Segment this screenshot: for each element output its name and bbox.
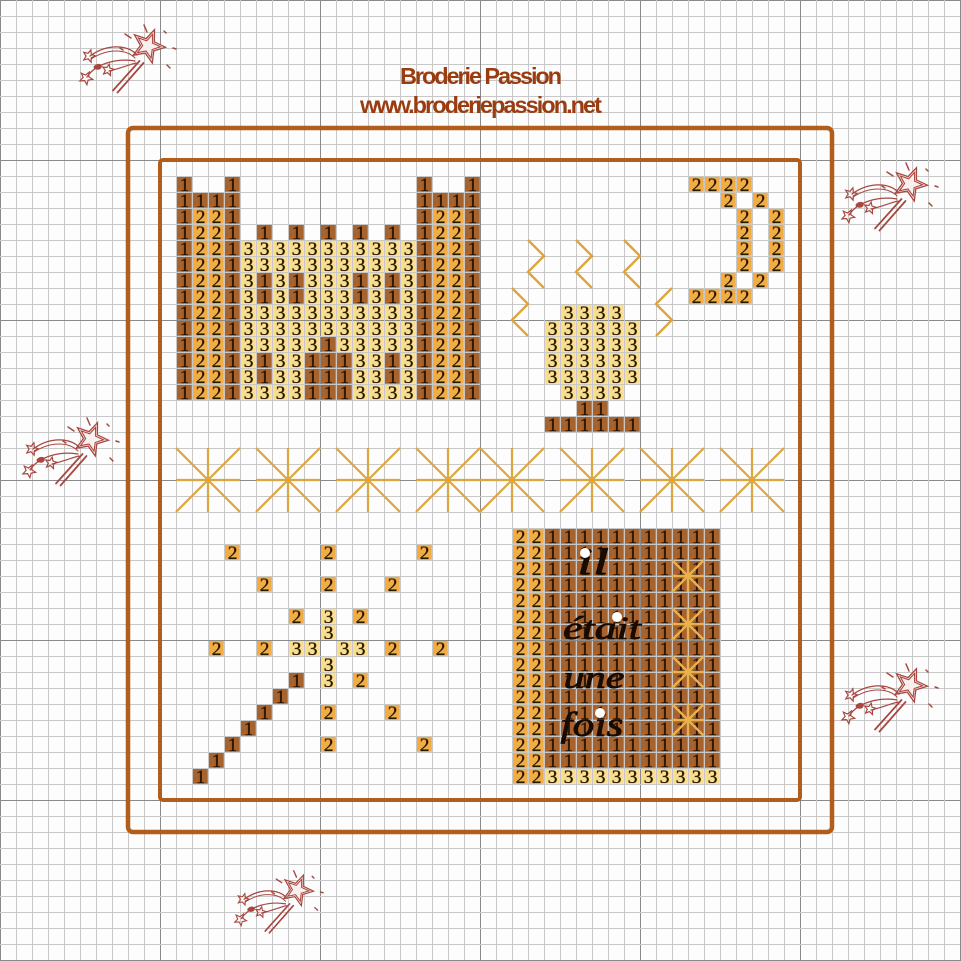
svg-text:2: 2 [708, 287, 718, 308]
svg-text:2: 2 [260, 639, 270, 660]
svg-text:1: 1 [228, 383, 238, 404]
svg-text:3: 3 [564, 767, 574, 788]
svg-text:3: 3 [292, 639, 302, 660]
svg-text:2: 2 [212, 383, 222, 404]
svg-text:fois: fois [561, 705, 624, 744]
svg-text:2: 2 [388, 575, 398, 596]
svg-text:3: 3 [324, 671, 334, 692]
svg-text:3: 3 [628, 767, 638, 788]
svg-text:1: 1 [612, 415, 622, 436]
svg-text:2: 2 [324, 543, 334, 564]
svg-text:3: 3 [292, 383, 302, 404]
svg-text:2: 2 [772, 255, 782, 276]
svg-text:2: 2 [740, 287, 750, 308]
svg-text:2: 2 [756, 271, 766, 292]
svg-text:3: 3 [644, 767, 654, 788]
svg-text:2: 2 [356, 671, 366, 692]
svg-text:3: 3 [612, 767, 622, 788]
svg-text:3: 3 [276, 383, 286, 404]
svg-text:2: 2 [532, 767, 542, 788]
svg-text:1: 1 [212, 751, 222, 772]
svg-text:3: 3 [580, 767, 590, 788]
svg-text:3: 3 [356, 383, 366, 404]
svg-text:3: 3 [244, 383, 254, 404]
svg-text:1: 1 [244, 719, 254, 740]
svg-text:une: une [564, 659, 625, 695]
svg-text:1: 1 [420, 383, 430, 404]
svg-text:2: 2 [708, 175, 718, 196]
svg-text:3: 3 [692, 767, 702, 788]
svg-text:1: 1 [340, 383, 350, 404]
svg-text:2: 2 [388, 639, 398, 660]
svg-text:2: 2 [692, 175, 702, 196]
svg-text:2: 2 [724, 287, 734, 308]
svg-text:2: 2 [324, 575, 334, 596]
svg-text:1: 1 [276, 687, 286, 708]
svg-text:2: 2 [356, 607, 366, 628]
svg-text:3: 3 [676, 767, 686, 788]
svg-text:3: 3 [548, 767, 558, 788]
svg-text:2: 2 [212, 639, 222, 660]
svg-text:3: 3 [628, 367, 638, 388]
svg-text:il: il [577, 542, 609, 583]
svg-text:2: 2 [516, 767, 526, 788]
svg-text:1: 1 [292, 671, 302, 692]
svg-text:1: 1 [324, 383, 334, 404]
svg-text:1: 1 [548, 415, 558, 436]
svg-text:3: 3 [308, 639, 318, 660]
svg-text:3: 3 [564, 383, 574, 404]
svg-text:1: 1 [596, 415, 606, 436]
svg-text:Broderie Passion: Broderie Passion [400, 63, 562, 89]
svg-text:2: 2 [420, 543, 430, 564]
svg-text:1: 1 [228, 735, 238, 756]
svg-text:2: 2 [692, 287, 702, 308]
svg-text:2: 2 [740, 175, 750, 196]
svg-text:2: 2 [420, 735, 430, 756]
svg-text:3: 3 [340, 639, 350, 660]
svg-text:1: 1 [468, 383, 478, 404]
svg-text:2: 2 [228, 543, 238, 564]
svg-text:1: 1 [564, 415, 574, 436]
svg-text:1: 1 [196, 767, 206, 788]
svg-text:3: 3 [356, 639, 366, 660]
svg-text:2: 2 [388, 703, 398, 724]
svg-text:2: 2 [724, 191, 734, 212]
svg-text:2: 2 [196, 383, 206, 404]
svg-text:3: 3 [324, 623, 334, 644]
svg-text:2: 2 [436, 383, 446, 404]
svg-text:était: était [563, 611, 642, 647]
svg-text:1: 1 [260, 703, 270, 724]
svg-text:3: 3 [404, 383, 414, 404]
svg-text:3: 3 [260, 383, 270, 404]
svg-text:3: 3 [548, 367, 558, 388]
svg-text:2: 2 [436, 639, 446, 660]
svg-text:1: 1 [580, 415, 590, 436]
svg-text:2: 2 [756, 191, 766, 212]
svg-text:3: 3 [388, 383, 398, 404]
svg-text:3: 3 [612, 383, 622, 404]
svg-text:3: 3 [708, 767, 718, 788]
svg-text:2: 2 [324, 735, 334, 756]
svg-text:2: 2 [292, 607, 302, 628]
svg-text:2: 2 [452, 383, 462, 404]
svg-text:2: 2 [260, 575, 270, 596]
svg-text:3: 3 [372, 383, 382, 404]
svg-text:2: 2 [740, 255, 750, 276]
svg-text:3: 3 [596, 767, 606, 788]
svg-text:1: 1 [628, 415, 638, 436]
svg-text:2: 2 [324, 703, 334, 724]
svg-text:1: 1 [180, 383, 190, 404]
svg-text:www.broderiepassion.net: www.broderiepassion.net [359, 92, 602, 118]
svg-text:1: 1 [308, 383, 318, 404]
svg-text:3: 3 [660, 767, 670, 788]
